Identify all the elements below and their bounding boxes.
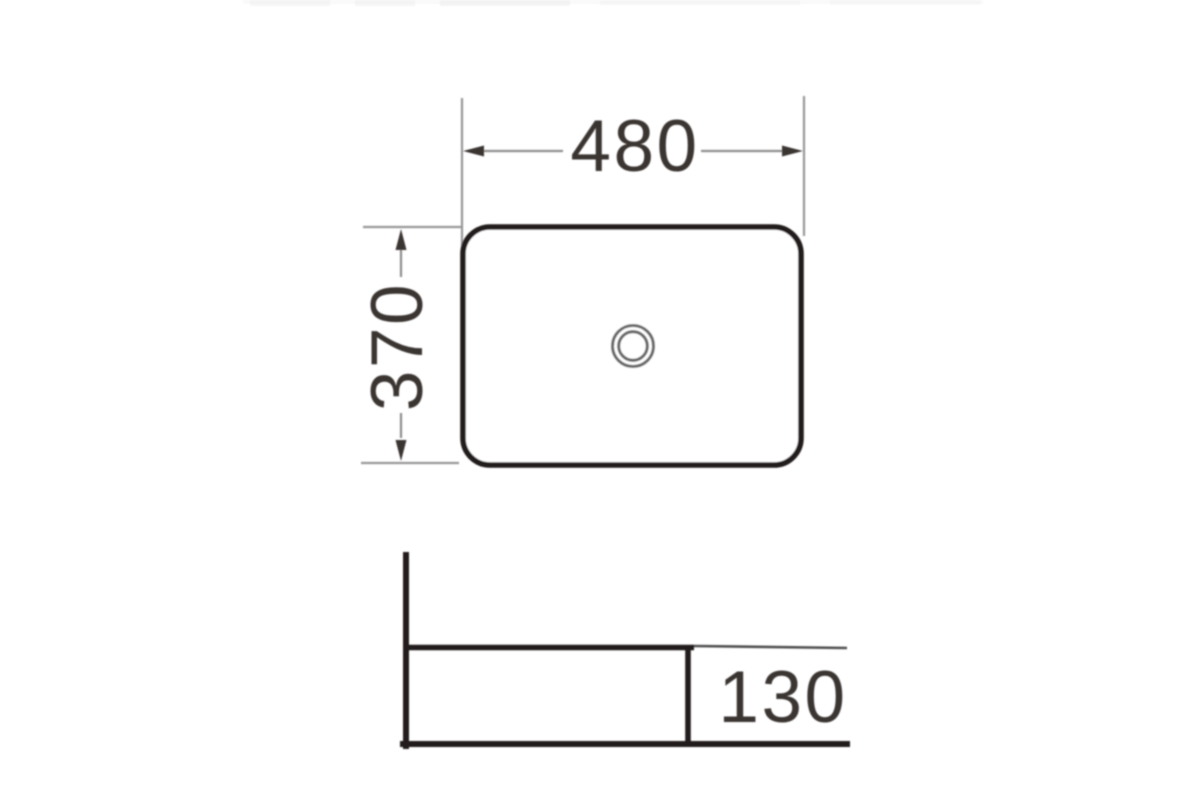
svg-text:370: 370 [357, 282, 438, 411]
svg-text:480: 480 [570, 106, 699, 187]
svg-text:130: 130 [718, 657, 847, 738]
